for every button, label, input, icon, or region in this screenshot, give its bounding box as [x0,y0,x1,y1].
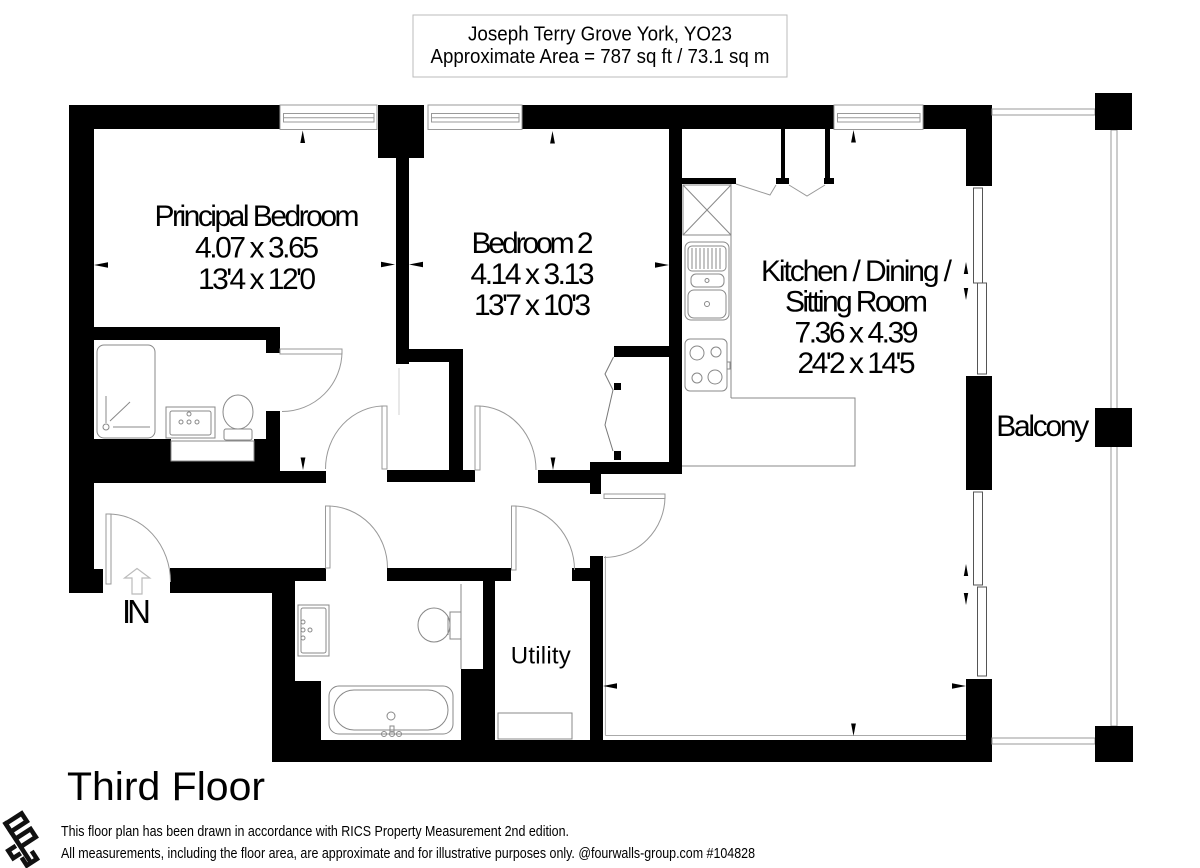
svg-text:4.14 x 3.13: 4.14 x 3.13 [471,258,595,291]
svg-text:13'7 x 10'3: 13'7 x 10'3 [474,289,591,322]
svg-text:This floor plan has been drawn: This floor plan has been drawn in accord… [61,823,569,840]
svg-text:Kitchen / Dining /: Kitchen / Dining / [761,255,953,288]
svg-text:Approximate Area = 787 sq ft /: Approximate Area = 787 sq ft / 73.1 sq m [431,45,770,68]
svg-text:All measurements, including th: All measurements, including the floor ar… [61,845,755,862]
svg-text:Third Floor: Third Floor [67,765,265,809]
svg-text:Principal Bedroom: Principal Bedroom [155,200,360,233]
svg-text:Balcony: Balcony [996,410,1089,443]
svg-text:4.07 x 3.65: 4.07 x 3.65 [195,232,319,265]
svg-text:Bedroom 2: Bedroom 2 [472,227,594,260]
svg-text:Sitting Room: Sitting Room [785,286,928,319]
svg-text:24'2 x 14'5: 24'2 x 14'5 [798,347,916,380]
svg-text:IN: IN [122,593,151,630]
svg-text:Utility: Utility [511,643,571,670]
svg-text:7.36 x 4.39: 7.36 x 4.39 [795,317,919,350]
svg-text:13'4 x 12'0: 13'4 x 12'0 [198,263,316,296]
svg-text:Joseph Terry Grove York, YO23: Joseph Terry Grove York, YO23 [468,23,732,46]
